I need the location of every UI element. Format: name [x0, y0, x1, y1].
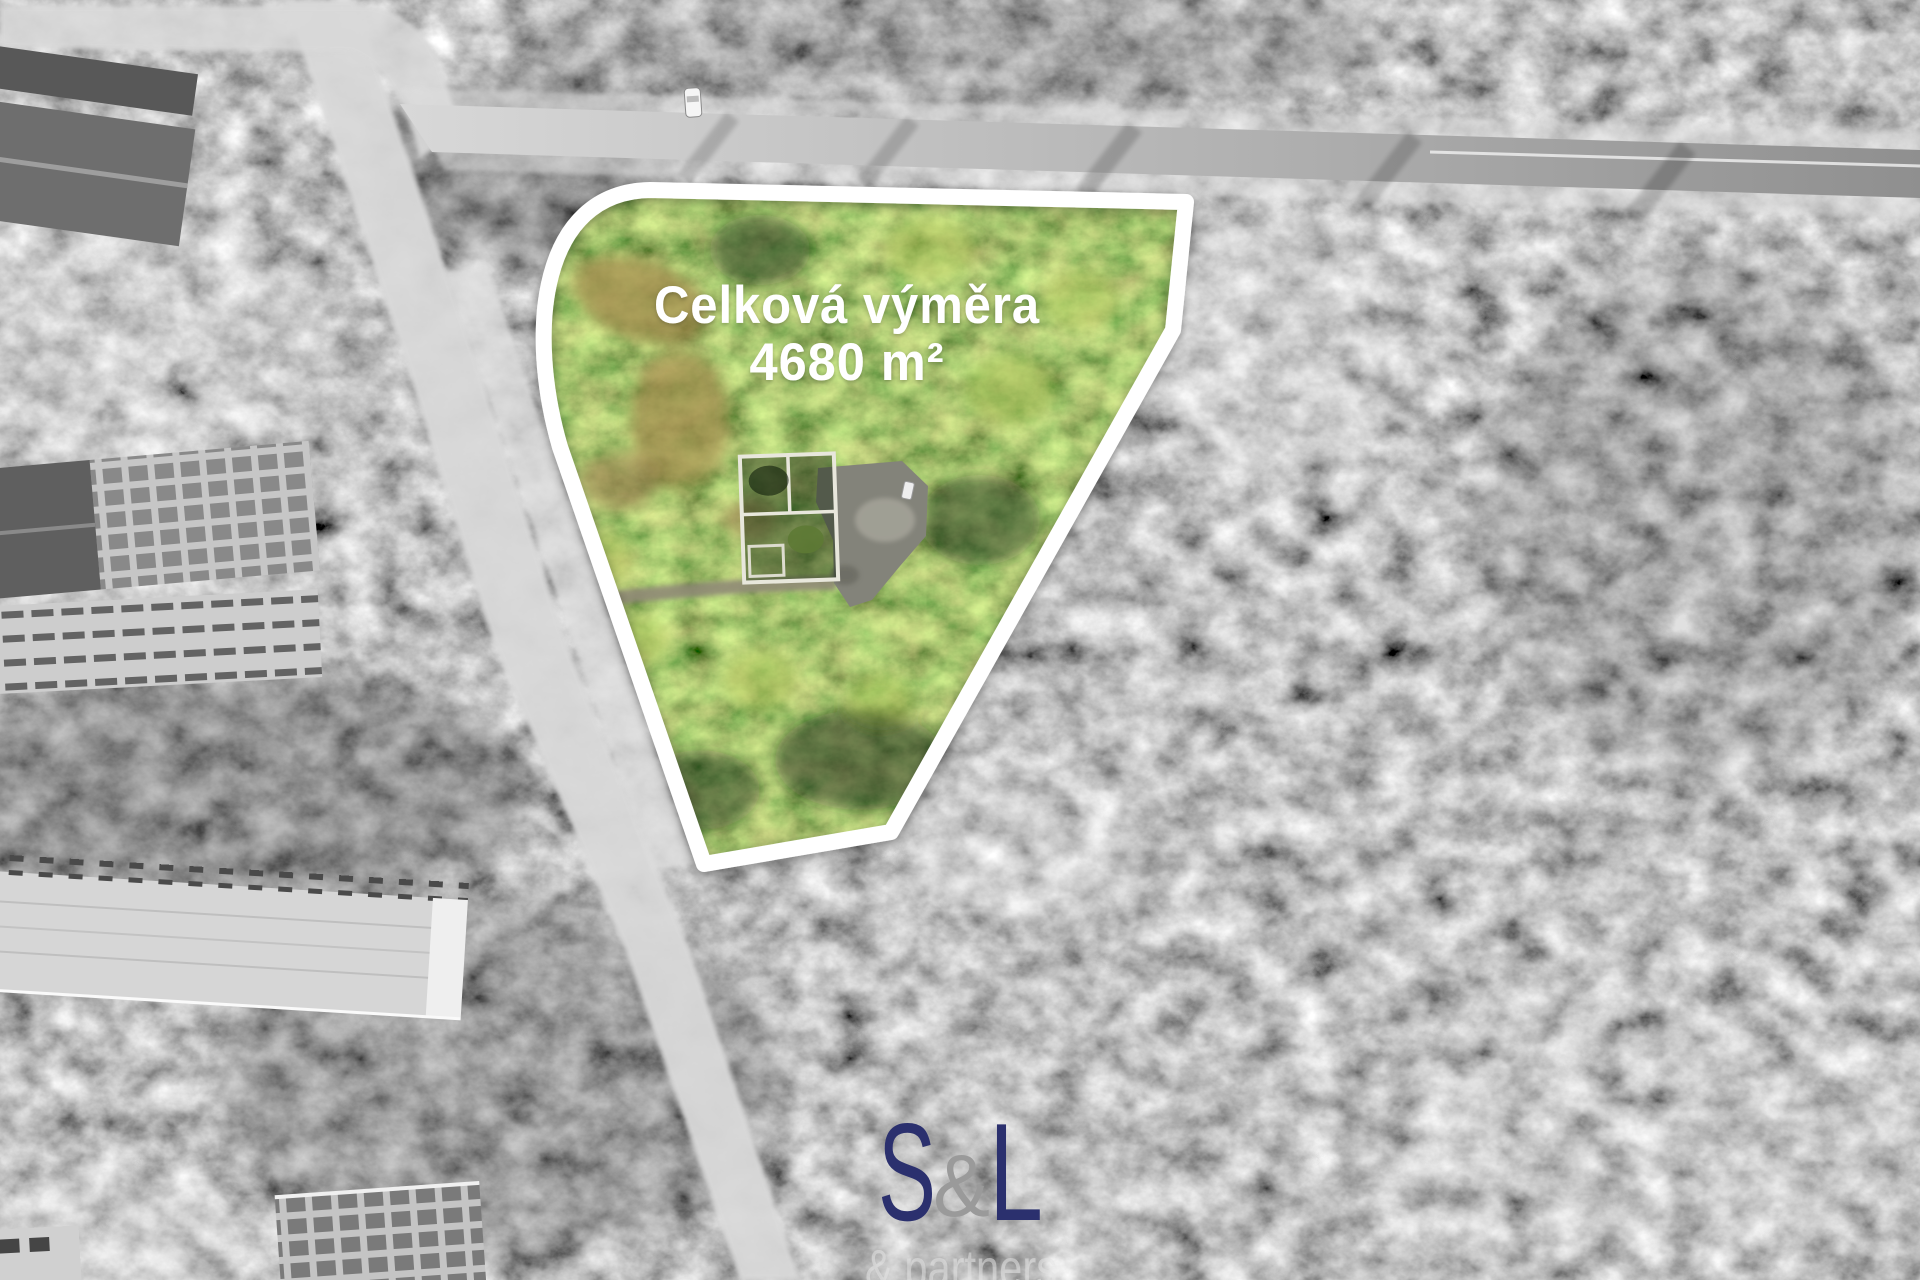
logo-letter-l: L [989, 1095, 1043, 1250]
window-rows [0, 589, 322, 695]
area-label-line1: Celková výměra [654, 276, 1040, 335]
forest-shade-blob [910, 780, 1150, 930]
room-grid [90, 441, 320, 590]
ruin-inner-wall [788, 455, 790, 513]
logo-letter-s: S [878, 1095, 936, 1250]
bright-grass-clump [885, 218, 975, 282]
logo-subtitle: & partners [865, 1240, 1057, 1280]
forest-shade-blob [1480, 260, 1920, 780]
aerial-photo: Celková výměra 4680 m² S & L & partners [0, 0, 1920, 1280]
screenshot-root: Celková výměra 4680 m² S & L & partners [0, 0, 1920, 1280]
forest-shade-blob [1350, 1000, 1910, 1280]
logo-ampersand: & [933, 1136, 990, 1235]
building-corner [0, 1225, 82, 1280]
worn-asphalt-patch [855, 498, 915, 542]
building-bottom [275, 1183, 487, 1280]
room-grid [275, 1183, 487, 1280]
room-cell [0, 1239, 20, 1254]
building-slab [0, 589, 322, 695]
dirt-patch [580, 450, 660, 510]
car-body [684, 87, 702, 117]
room-cell [29, 1237, 50, 1252]
bright-grass-clump [724, 650, 796, 710]
ruin-foundation [740, 453, 838, 582]
gable-wall [426, 898, 468, 1020]
bright-grass-clump [1042, 270, 1118, 330]
dark-tree-shadow [710, 215, 810, 285]
dark-tree-shadow [920, 475, 1040, 565]
car-windshield [687, 96, 699, 103]
area-label-line2: 4680 m² [750, 333, 945, 392]
bright-grass-clump [965, 355, 1055, 425]
building-topleft [0, 46, 203, 247]
parked-car [684, 87, 702, 117]
